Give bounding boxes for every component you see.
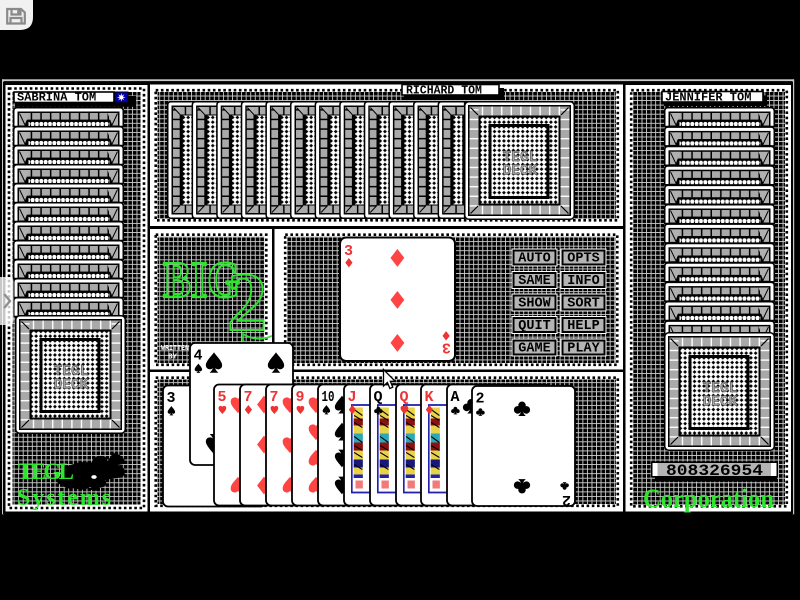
svg-text:J: J (348, 389, 357, 406)
svg-text:2: 2 (562, 491, 571, 508)
svg-text:QUIT: QUIT (518, 319, 550, 334)
svg-text:HELP: HELP (567, 319, 599, 334)
svg-text:808326954: 808326954 (666, 462, 763, 480)
svg-text:BY: BY (168, 354, 178, 362)
svg-text:JENNIFER TOM: JENNIFER TOM (665, 90, 751, 104)
svg-text:3: 3 (442, 339, 451, 356)
svg-text:3: 3 (344, 243, 353, 260)
svg-text:4: 4 (194, 348, 203, 365)
svg-text:5: 5 (218, 389, 227, 406)
svg-text:A: A (451, 389, 460, 406)
svg-text:SHOW: SHOW (518, 297, 551, 312)
svg-text:9: 9 (296, 389, 305, 406)
svg-text:WRITTEN: WRITTEN (161, 345, 189, 353)
svg-text:K: K (425, 389, 434, 406)
svg-text:2: 2 (476, 391, 485, 408)
svg-text:RICHARD TOM: RICHARD TOM (406, 84, 482, 97)
svg-text:7: 7 (244, 389, 253, 406)
svg-text:SAME: SAME (518, 274, 550, 289)
svg-text:2: 2 (227, 256, 267, 349)
svg-text:SORT: SORT (567, 297, 599, 312)
svg-text:7: 7 (270, 389, 279, 406)
svg-text:GAME: GAME (518, 342, 550, 357)
svg-text:SABRINA TOM: SABRINA TOM (17, 91, 96, 105)
svg-text:INFO: INFO (567, 274, 599, 289)
svg-text:AUTO: AUTO (518, 252, 550, 267)
svg-text:TEGL: TEGL (18, 459, 74, 484)
svg-text:Q: Q (400, 389, 409, 406)
svg-text:PLAY: PLAY (567, 342, 600, 357)
svg-text:3: 3 (167, 390, 176, 407)
svg-text:Q: Q (374, 389, 383, 406)
svg-text:10: 10 (322, 389, 335, 406)
svg-text:Corporation: Corporation (643, 484, 774, 513)
svg-text:OPTS: OPTS (567, 252, 599, 267)
